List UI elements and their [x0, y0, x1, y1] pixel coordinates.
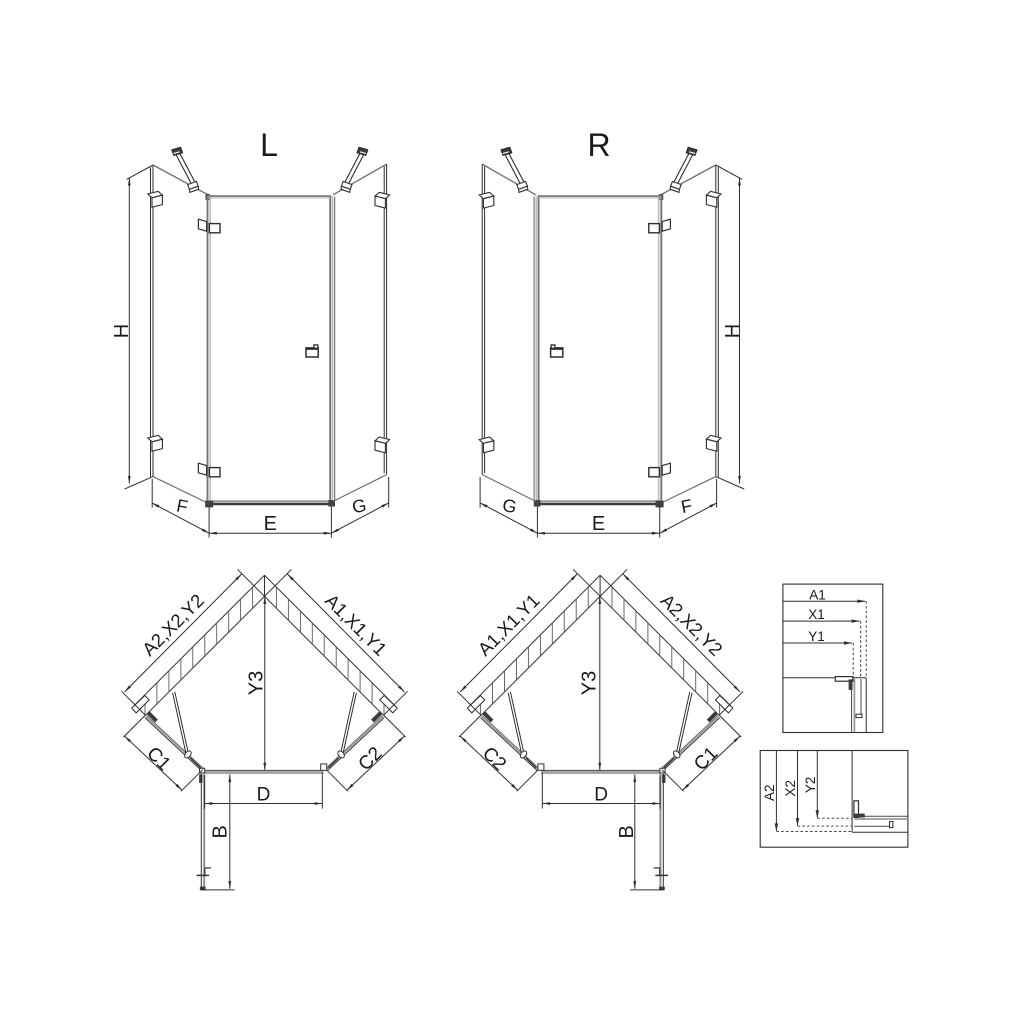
svg-text:Y3: Y3 — [578, 671, 600, 695]
svg-text:D: D — [257, 784, 271, 805]
svg-text:X2: X2 — [783, 780, 798, 797]
svg-text:R: R — [587, 127, 610, 163]
svg-text:A1: A1 — [809, 587, 826, 602]
svg-text:E: E — [264, 513, 277, 535]
svg-text:D: D — [594, 784, 608, 805]
svg-text:X1: X1 — [808, 607, 825, 622]
svg-text:H: H — [111, 324, 133, 338]
svg-text:Y1: Y1 — [808, 629, 825, 644]
svg-text:Y3: Y3 — [245, 671, 267, 695]
svg-text:Y2: Y2 — [803, 777, 818, 794]
svg-text:B: B — [209, 825, 231, 838]
svg-text:A2: A2 — [762, 784, 777, 801]
svg-text:B: B — [616, 825, 638, 838]
svg-text:L: L — [260, 127, 278, 163]
svg-text:H: H — [722, 324, 744, 338]
svg-text:E: E — [592, 513, 605, 535]
